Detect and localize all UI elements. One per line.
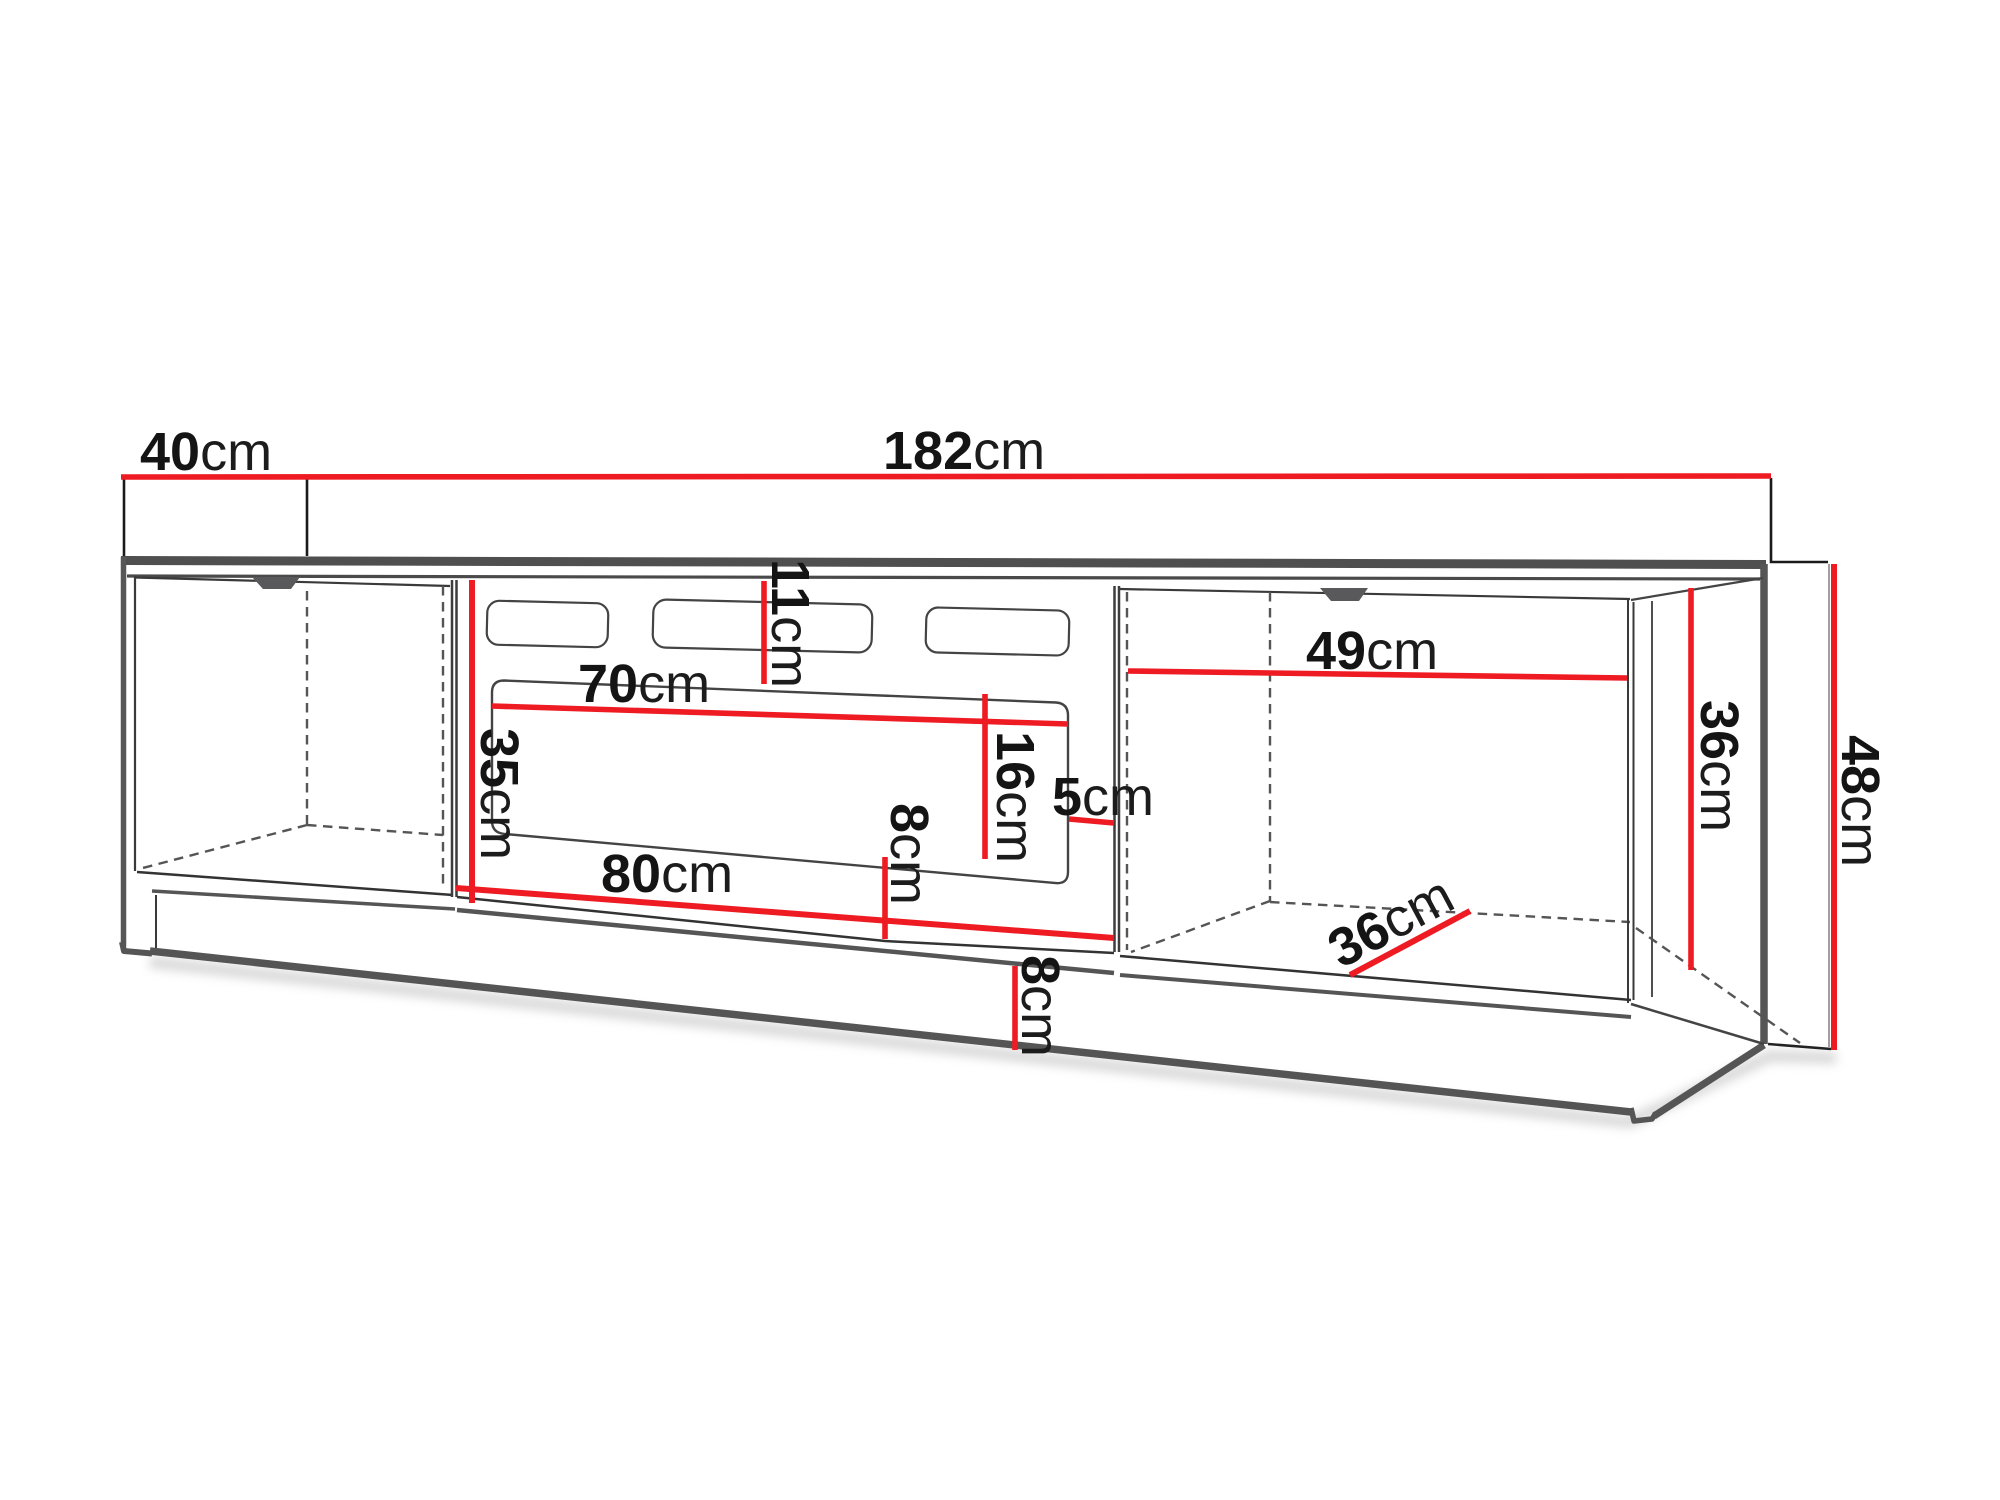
svg-text:48cm: 48cm: [1830, 735, 1890, 867]
svg-text:8cm: 8cm: [879, 803, 939, 905]
svg-text:36cm: 36cm: [1689, 700, 1749, 832]
svg-text:11cm: 11cm: [760, 559, 820, 688]
svg-text:80cm: 80cm: [601, 844, 733, 904]
svg-text:35cm: 35cm: [469, 728, 529, 860]
svg-text:182cm: 182cm: [883, 421, 1045, 481]
svg-text:49cm: 49cm: [1306, 621, 1438, 681]
svg-text:16cm: 16cm: [985, 731, 1045, 863]
svg-text:8cm: 8cm: [1010, 955, 1070, 1057]
svg-text:5cm: 5cm: [1052, 767, 1154, 827]
svg-text:70cm: 70cm: [578, 654, 710, 714]
svg-text:40cm: 40cm: [140, 422, 272, 482]
